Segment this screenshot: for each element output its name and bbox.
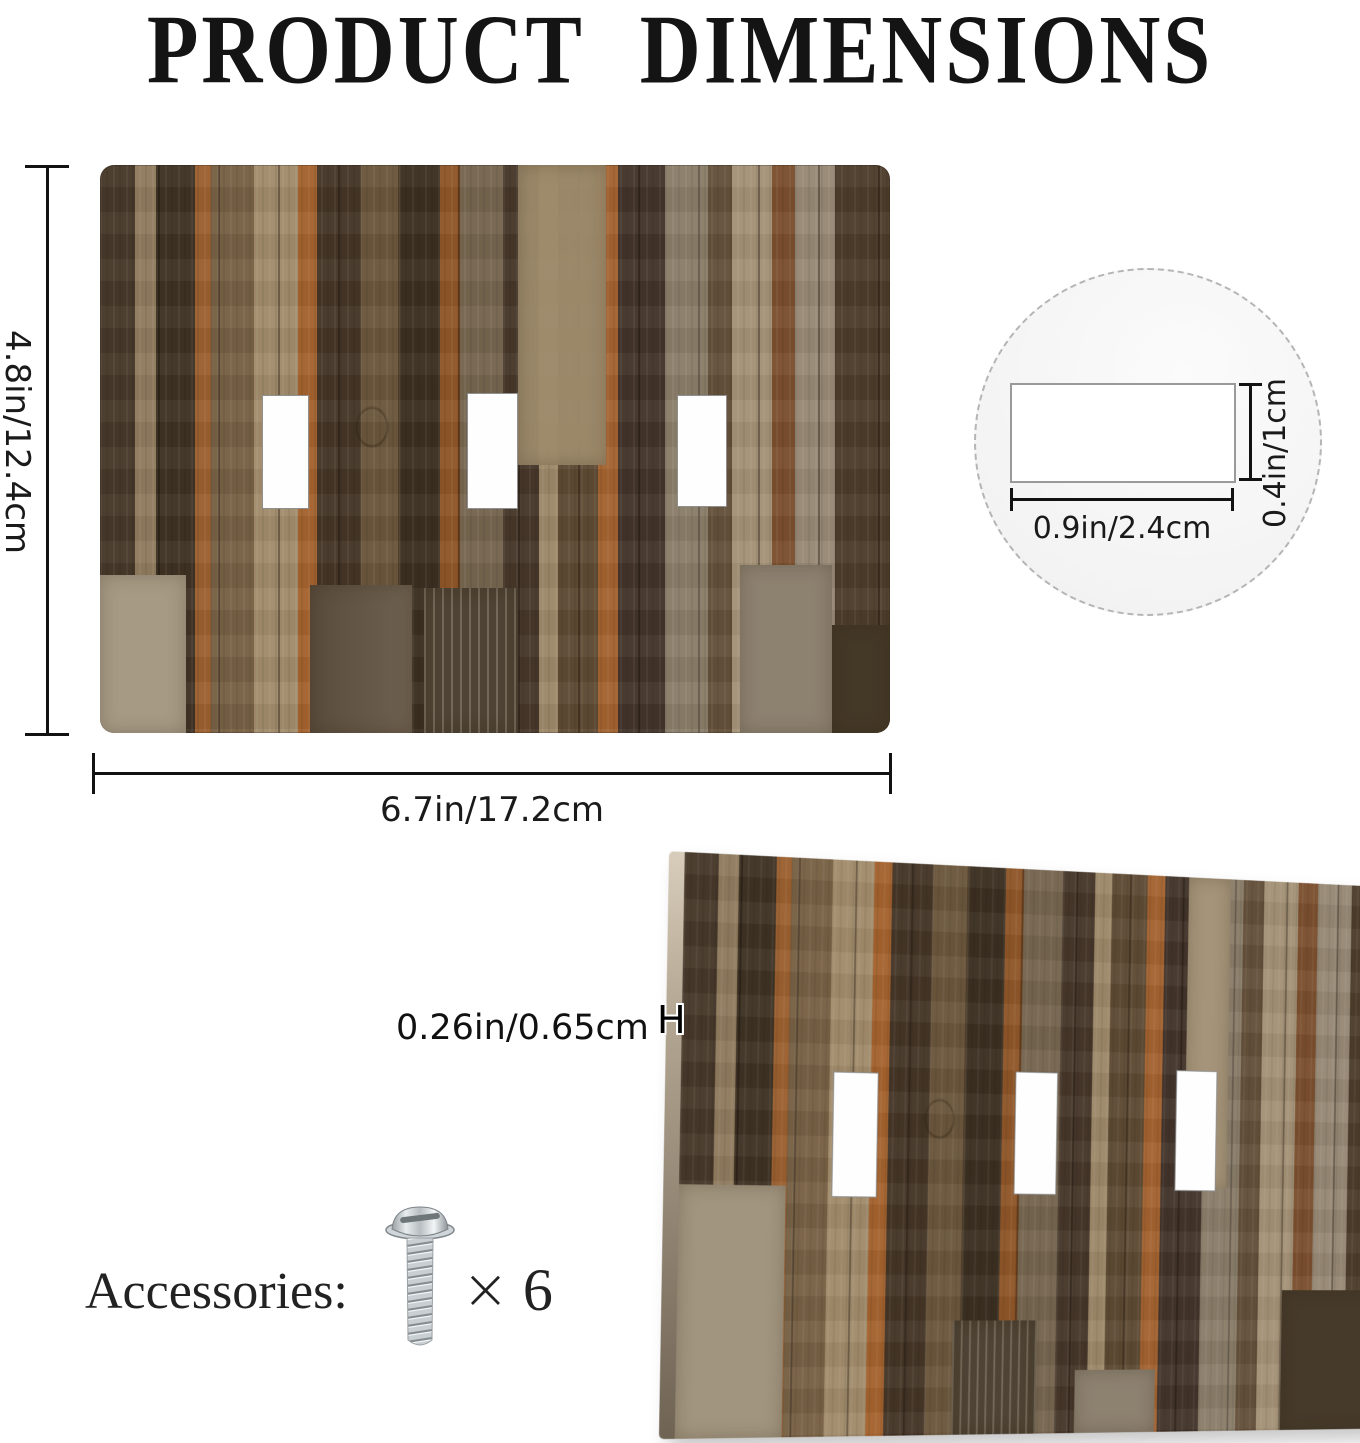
plank-patch [740,565,832,733]
dimension-cap [92,753,95,794]
dimension-line [1249,384,1252,480]
thickness-label: 0.26in/0.65cm [396,1008,649,1048]
dimension-line [92,772,892,775]
dimension-cap [25,733,69,736]
toggle-cutout [262,395,309,509]
dimension-cap [1231,488,1234,511]
detail-hole-rect [1010,383,1236,483]
side-view-plate [659,851,1360,1439]
height-dimension-label: 4.8in/12.4cm [0,330,37,554]
plank-patch [675,1184,786,1439]
width-dimension-label: 6.7in/17.2cm [92,790,892,830]
accessories-label: Accessories: [85,1262,348,1321]
screw-icon [381,1200,459,1356]
plank-patch [310,585,412,733]
multiplier-sign: × [462,1257,509,1322]
plank-patch [1280,1290,1360,1430]
accessories-quantity: ×6 [462,1256,553,1325]
toggle-cutout [831,1071,878,1197]
plank-patch [951,1320,1037,1434]
accessories-count: 6 [523,1257,553,1323]
plank-patch [518,165,606,465]
dimension-line [46,166,49,736]
dimension-cap [1010,488,1013,511]
detail-height-label: 0.4in/1cm [1258,336,1293,528]
front-view-plate [100,165,890,733]
detail-width-label: 0.9in/2.4cm [1010,511,1234,546]
product-dimensions-infographic: PRODUCT DIMENSIONS 4.8in/12.4cm 6.7in/17… [0,0,1360,1443]
plank-patch [1074,1369,1155,1433]
plank-patch [424,588,518,733]
dimension-cap [25,165,69,168]
side-view-face [675,852,1360,1439]
page-title: PRODUCT DIMENSIONS [27,0,1333,107]
toggle-cutout [677,395,727,507]
plank-patch [832,625,890,733]
toggle-cutout [1014,1071,1059,1195]
height-marker: H [657,998,686,1042]
dimension-line [1010,498,1234,501]
plank-patch [100,575,186,733]
toggle-cutout [1174,1070,1217,1191]
toggle-cutout [467,393,518,509]
dimension-cap [889,753,892,794]
